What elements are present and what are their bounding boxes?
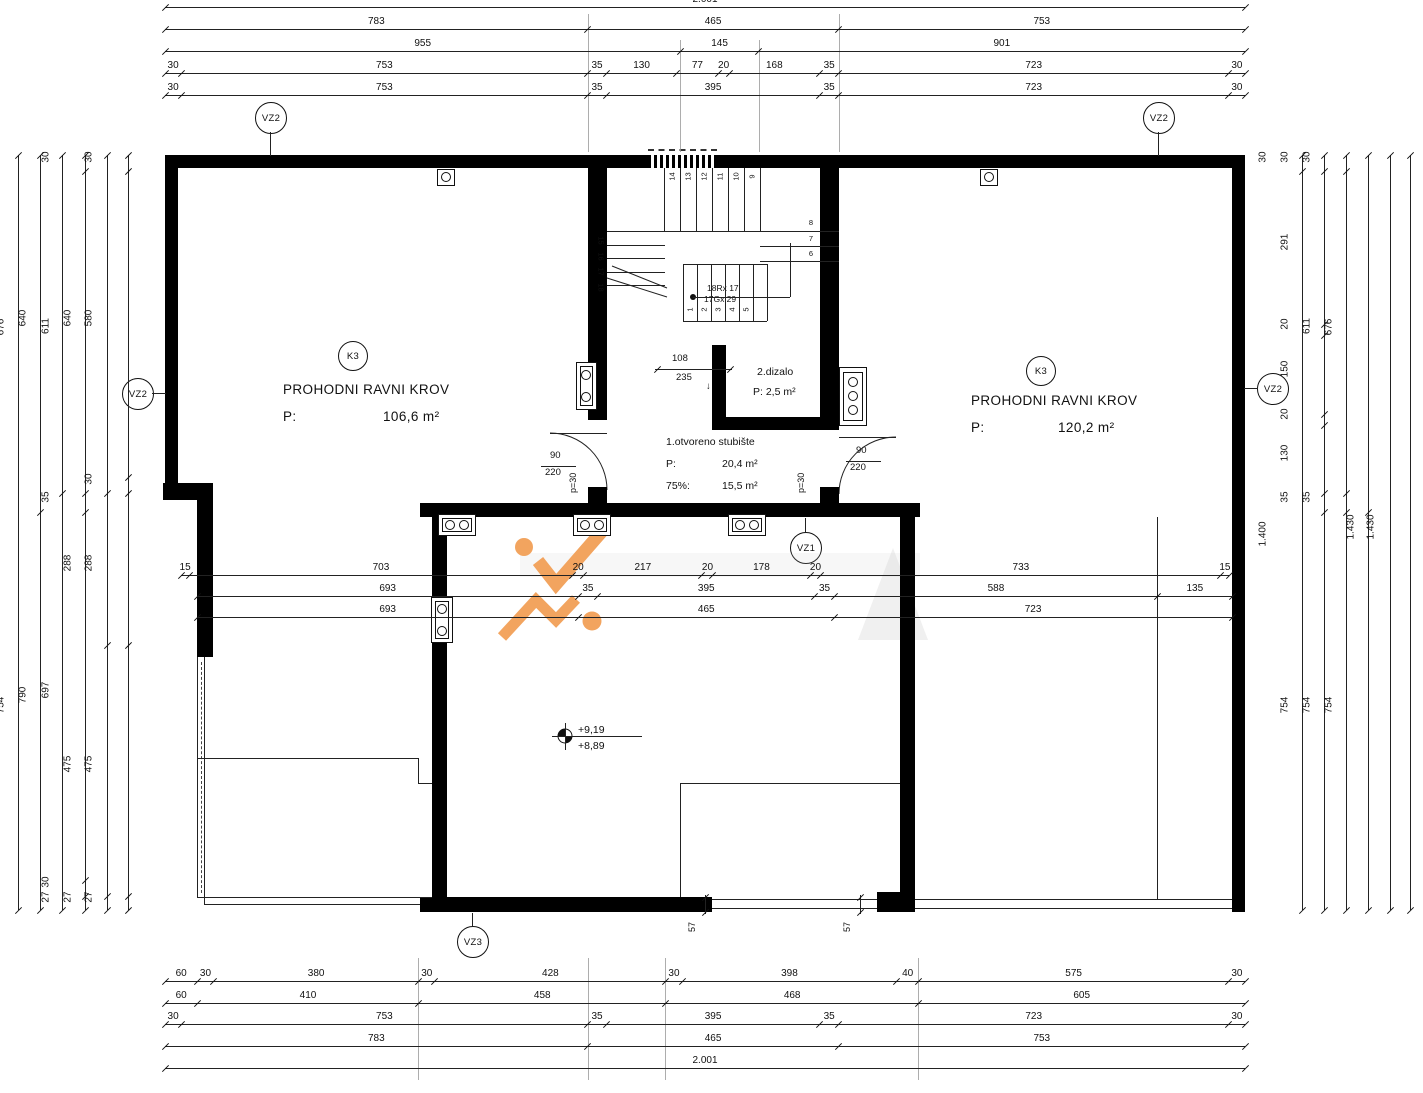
dim-chain-middle-1-value-0: 15 bbox=[155, 562, 215, 573]
floor-plan-sheet: K3 PROHODNI RAVNI KROV P: 106,6 m² K3 PR… bbox=[0, 0, 1423, 1093]
drain-circle-13 bbox=[441, 172, 451, 182]
plan-line-28 bbox=[607, 285, 665, 286]
dim-chain-left-5-value-2: 475 bbox=[63, 734, 74, 794]
dim-chain-left-3-value-1: 790 bbox=[18, 665, 29, 725]
dim-chain-middle-1-value-7: 733 bbox=[991, 562, 1051, 573]
dim-chain-top-2 bbox=[165, 29, 1245, 30]
dim-chain-top-1 bbox=[165, 7, 1245, 8]
dim-chain-bottom-2-value-3: 468 bbox=[762, 990, 822, 1001]
drain-circle-9 bbox=[581, 392, 591, 402]
dim-chain-top-5-value-0: 30 bbox=[143, 82, 203, 93]
dim-chain-middle-1-value-1: 703 bbox=[351, 562, 411, 573]
plan-line-33 bbox=[697, 264, 698, 321]
dim-chain-left-6-value-5: 27 bbox=[84, 867, 95, 927]
dim-chain-left-2-value-1: 754 bbox=[0, 675, 7, 735]
dim-chain-right-3-value-0: 30 bbox=[1302, 127, 1313, 187]
dim-chain-middle-1 bbox=[181, 575, 1229, 576]
plan-line-39 bbox=[790, 243, 791, 297]
plan-line-26 bbox=[607, 258, 665, 259]
dim-chain-middle-1-value-8: 15 bbox=[1195, 562, 1255, 573]
plan-line-19 bbox=[712, 168, 713, 231]
plan-line-42 bbox=[680, 40, 681, 152]
dim-chain-top-5-value-1: 753 bbox=[354, 82, 414, 93]
plan-line-15 bbox=[607, 231, 839, 232]
section-break-dashed bbox=[648, 149, 717, 151]
dim-chain-right-1-value-1: 1.400 bbox=[1258, 504, 1269, 564]
dim-chain-bottom-5-value-0: 2.001 bbox=[675, 1055, 735, 1066]
dim-chain-top-2-value-1: 465 bbox=[683, 16, 743, 27]
dim-chain-bottom-2-value-4: 605 bbox=[1052, 990, 1112, 1001]
plan-line-1 bbox=[204, 904, 420, 905]
level-marker-quadrant-se bbox=[565, 736, 572, 743]
dim-chain-left-6-value-0: 30 bbox=[84, 127, 95, 187]
stair-step-number-top-10: 10 bbox=[732, 170, 741, 184]
dim-chain-top-4-value-9: 30 bbox=[1207, 60, 1267, 71]
dim-chain-bottom-1-value-4: 428 bbox=[520, 968, 580, 979]
section-break-hatch bbox=[648, 155, 717, 168]
plan-line-37 bbox=[753, 264, 754, 321]
dim-chain-middle-1-value-4: 20 bbox=[677, 562, 737, 573]
dim-chain-bottom-1-value-1: 30 bbox=[175, 968, 235, 979]
dim-chain-middle-3 bbox=[197, 617, 1232, 618]
plan-line-25 bbox=[607, 245, 665, 246]
wall-15 bbox=[420, 897, 712, 912]
dim-chain-top-2-value-2: 753 bbox=[1012, 16, 1072, 27]
dim-chain-left-4-value-2: 35 bbox=[41, 467, 52, 527]
dim-chain-bottom-3-value-2: 35 bbox=[567, 1011, 627, 1022]
dim-chain-top-3-value-0: 955 bbox=[393, 38, 453, 49]
plan-line-22 bbox=[760, 168, 761, 231]
dim-chain-middle-1-value-5: 178 bbox=[731, 562, 791, 573]
dim-chain-left-6 bbox=[128, 155, 129, 910]
dim-chain-top-4 bbox=[165, 73, 1245, 74]
plan-line-54 bbox=[472, 913, 473, 926]
plan-line-16 bbox=[664, 168, 665, 231]
dim-chain-middle-2-value-5: 135 bbox=[1165, 583, 1225, 594]
drain-circle-5 bbox=[749, 520, 759, 530]
plan-line-13 bbox=[915, 908, 1232, 909]
dim-chain-right-6-value-0: 1.430 bbox=[1366, 497, 1377, 557]
dim-chain-bottom-1-value-6: 398 bbox=[759, 968, 819, 979]
plan-line-30 bbox=[683, 321, 767, 322]
dim-chain-left-1 bbox=[18, 155, 19, 910]
drain-circle-3 bbox=[594, 520, 604, 530]
plan-line-51 bbox=[152, 393, 166, 394]
dim-chain-top-4-value-3: 130 bbox=[612, 60, 672, 71]
plan-line-21 bbox=[744, 168, 745, 231]
wall-8 bbox=[820, 168, 839, 430]
plan-line-12 bbox=[915, 899, 1232, 900]
dim-chain-left-2 bbox=[40, 155, 41, 910]
dim-chain-right-2-value-7: 754 bbox=[1280, 675, 1291, 735]
dim-chain-top-3 bbox=[165, 51, 1245, 52]
plan-line-23 bbox=[760, 246, 839, 247]
dim-chain-bottom-3-value-5: 723 bbox=[1004, 1011, 1064, 1022]
plan-line-32 bbox=[767, 264, 768, 321]
dim-chain-bottom-3-value-4: 35 bbox=[799, 1011, 859, 1022]
dim-chain-middle-1-value-6: 20 bbox=[785, 562, 845, 573]
stair-step-number-right-8: 8 bbox=[804, 218, 818, 227]
stair-step-number-left-18: 18 bbox=[597, 280, 606, 294]
drain-circle-4 bbox=[735, 520, 745, 530]
plan-line-40 bbox=[655, 369, 732, 370]
door-left-arc bbox=[550, 433, 607, 490]
dim-chain-bottom-1-value-3: 30 bbox=[397, 968, 457, 979]
plan-line-34 bbox=[711, 264, 712, 321]
dim-chain-left-6-value-2: 30 bbox=[84, 449, 95, 509]
dim-chain-middle-2-value-3: 35 bbox=[795, 583, 855, 594]
dim-chain-middle-3-value-0: 693 bbox=[358, 604, 418, 615]
dim-chain-middle-2-value-1: 35 bbox=[558, 583, 618, 594]
wall-4 bbox=[197, 500, 213, 657]
stair-step-number-bottom-3: 3 bbox=[714, 303, 723, 317]
dim-chain-bottom-1 bbox=[165, 981, 1245, 982]
drain-circle-6 bbox=[437, 604, 447, 614]
plan-line-38 bbox=[693, 297, 790, 298]
plan-line-17 bbox=[680, 168, 681, 231]
dim-chain-top-4-value-8: 723 bbox=[1004, 60, 1064, 71]
dim-chain-right-2 bbox=[1324, 155, 1325, 910]
plan-line-7 bbox=[418, 783, 432, 784]
dim-chain-middle-2-value-0: 693 bbox=[358, 583, 418, 594]
stair-step-number-right-6: 6 bbox=[804, 249, 818, 258]
dim-chain-right-2-value-0: 30 bbox=[1280, 127, 1291, 187]
plan-line-5 bbox=[197, 758, 418, 759]
plan-line-6 bbox=[418, 758, 419, 783]
dim-chain-top-5-value-3: 395 bbox=[683, 82, 743, 93]
plan-line-3 bbox=[204, 657, 205, 904]
dim-chain-top-5-value-2: 35 bbox=[567, 82, 627, 93]
plan-line-24 bbox=[760, 261, 839, 262]
dim-chain-right-3-value-1: 611 bbox=[1302, 296, 1313, 356]
dim-chain-bottom-2 bbox=[165, 1003, 1245, 1004]
dim-chain-top-4-value-0: 30 bbox=[143, 60, 203, 71]
dim-chain-bottom-3-value-6: 30 bbox=[1207, 1011, 1267, 1022]
stair-step-number-bottom-1: 1 bbox=[686, 303, 695, 317]
dim-chain-top-5-value-5: 723 bbox=[1004, 82, 1064, 93]
stair-break-line-2 bbox=[607, 278, 667, 297]
dim-chain-top-5-value-6: 30 bbox=[1207, 82, 1267, 93]
plan-line-11 bbox=[712, 908, 877, 909]
stair-step-number-right-7: 7 bbox=[804, 234, 818, 243]
wall-3 bbox=[163, 483, 213, 500]
plan-line-43 bbox=[759, 40, 760, 152]
door-right-arc bbox=[839, 437, 896, 494]
dim-chain-right-5 bbox=[1390, 155, 1391, 910]
dim-chain-middle-2-value-4: 588 bbox=[966, 583, 1026, 594]
dim-chain-bottom-2-value-0: 60 bbox=[151, 990, 211, 1001]
dim-chain-middle-3-value-2: 723 bbox=[1003, 604, 1063, 615]
drain-circle-1 bbox=[459, 520, 469, 530]
plan-line-57 bbox=[541, 466, 576, 467]
dim-chain-bottom-2-value-2: 458 bbox=[512, 990, 572, 1001]
plan-line-56 bbox=[839, 437, 896, 438]
dim-chain-left-6-value-3: 288 bbox=[84, 533, 95, 593]
dim-chain-bottom-3-value-3: 395 bbox=[683, 1011, 743, 1022]
stair-step-number-bottom-5: 5 bbox=[742, 303, 751, 317]
dim-chain-right-3-value-3: 754 bbox=[1302, 675, 1313, 735]
dim-chain-left-5-value-1: 288 bbox=[63, 533, 74, 593]
dim-chain-middle-2-value-2: 395 bbox=[676, 583, 736, 594]
stair-step-number-bottom-4: 4 bbox=[728, 303, 737, 317]
dim-chain-top-5 bbox=[165, 95, 1245, 96]
dim-chain-top-1-value-0: 2.001 bbox=[675, 0, 735, 5]
plan-line-18 bbox=[696, 168, 697, 231]
dim-chain-left-4-value-1: 611 bbox=[41, 296, 52, 356]
wall-11 bbox=[712, 417, 839, 430]
dim-chain-right-3-value-2: 35 bbox=[1302, 467, 1313, 527]
dim-chain-middle-1-value-2: 20 bbox=[548, 562, 608, 573]
drain-circle-11 bbox=[848, 391, 858, 401]
plan-line-53 bbox=[805, 518, 806, 532]
plan-line-50 bbox=[1158, 132, 1159, 156]
dim-chain-bottom-4 bbox=[165, 1046, 1245, 1047]
level-marker-quadrant-nw bbox=[558, 729, 565, 736]
dim-chain-left-4-value-5: 27 bbox=[41, 867, 52, 927]
dim-chain-bottom-3-value-1: 753 bbox=[354, 1011, 414, 1022]
dim-chain-right-6 bbox=[1410, 155, 1411, 910]
plan-line-35 bbox=[725, 264, 726, 321]
plan-line-62 bbox=[565, 723, 566, 750]
drain-circle-12 bbox=[848, 405, 858, 415]
drain-circle-10 bbox=[848, 377, 858, 387]
plan-line-55 bbox=[550, 433, 607, 434]
stair-step-number-top-11: 11 bbox=[716, 170, 725, 184]
dim-chain-right-5-value-0: 1.430 bbox=[1346, 497, 1357, 557]
dim-chain-top-3-value-2: 901 bbox=[972, 38, 1032, 49]
wall-0 bbox=[165, 155, 648, 168]
dim-chain-right-1 bbox=[1302, 155, 1303, 910]
dim-chain-bottom-3 bbox=[165, 1024, 1245, 1025]
dim-chain-bottom-4-value-0: 783 bbox=[346, 1033, 406, 1044]
wall-16 bbox=[877, 892, 915, 912]
plan-line-2 bbox=[197, 657, 198, 897]
dim-chain-top-5-value-4: 35 bbox=[799, 82, 859, 93]
plan-line-9 bbox=[680, 783, 900, 784]
dim-chain-bottom-1-value-9: 30 bbox=[1207, 968, 1267, 979]
drain-circle-7 bbox=[437, 626, 447, 636]
dim-chain-top-4-value-7: 35 bbox=[799, 60, 859, 71]
stair-step-number-left-16: 16 bbox=[597, 249, 606, 263]
dim-chain-top-4-value-1: 753 bbox=[354, 60, 414, 71]
drain-circle-0 bbox=[445, 520, 455, 530]
plan-line-27 bbox=[607, 272, 665, 273]
dim-chain-bottom-1-value-5: 30 bbox=[644, 968, 704, 979]
dim-chain-bottom-4-value-2: 753 bbox=[1012, 1033, 1072, 1044]
dim-chain-middle-2 bbox=[197, 596, 1232, 597]
stair-step-number-top-14: 14 bbox=[668, 170, 677, 184]
stair-step-number-top-13: 13 bbox=[684, 170, 693, 184]
stair-step-number-left-15: 15 bbox=[597, 234, 606, 248]
dim-chain-top-2-value-0: 783 bbox=[346, 16, 406, 27]
wall-12 bbox=[420, 503, 920, 517]
dim-chain-left-6-value-4: 475 bbox=[84, 734, 95, 794]
stair-step-number-top-9: 9 bbox=[748, 170, 757, 184]
plan-line-4 bbox=[201, 662, 203, 893]
dim-chain-bottom-4-value-1: 465 bbox=[683, 1033, 743, 1044]
dim-chain-bottom-3-value-0: 30 bbox=[143, 1011, 203, 1022]
stair-step-number-bottom-2: 2 bbox=[700, 303, 709, 317]
plan-line-10 bbox=[712, 899, 877, 900]
dim-chain-left-4-value-0: 30 bbox=[41, 127, 52, 187]
plan-line-36 bbox=[739, 264, 740, 321]
dim-chain-top-3-value-1: 145 bbox=[690, 38, 750, 49]
plan-line-52 bbox=[1244, 388, 1258, 389]
dim-chain-left-6-value-1: 580 bbox=[84, 288, 95, 348]
wall-13 bbox=[432, 517, 447, 912]
plan-line-0 bbox=[197, 897, 432, 898]
dim-chain-right-4-value-0: 676 bbox=[1324, 297, 1335, 357]
dim-chain-left-5-value-3: 27 bbox=[63, 867, 74, 927]
plan-line-8 bbox=[680, 783, 681, 897]
dim-chain-middle-1-value-3: 217 bbox=[613, 562, 673, 573]
plan-line-20 bbox=[728, 168, 729, 231]
dim-chain-bottom-2-value-1: 410 bbox=[278, 990, 338, 1001]
plan-line-58 bbox=[846, 461, 881, 462]
plan-line-49 bbox=[270, 132, 271, 156]
dim-chain-right-1-value-0: 30 bbox=[1258, 127, 1269, 187]
dim-chain-bottom-1-value-7: 40 bbox=[878, 968, 938, 979]
wall-2 bbox=[165, 155, 178, 500]
dim-chain-right-2-value-1: 291 bbox=[1280, 212, 1291, 272]
dim-chain-top-4-value-6: 168 bbox=[744, 60, 804, 71]
dim-chain-left-4-value-3: 697 bbox=[41, 660, 52, 720]
drain-circle-8 bbox=[581, 370, 591, 380]
dim-chain-left-2-value-0: 676 bbox=[0, 297, 7, 357]
drain-circle-14 bbox=[984, 172, 994, 182]
dim-chain-left-3-value-0: 640 bbox=[18, 288, 29, 348]
dim-chain-left-5 bbox=[107, 155, 108, 910]
stair-step-number-top-12: 12 bbox=[700, 170, 709, 184]
dim-chain-bottom-1-value-2: 380 bbox=[286, 968, 346, 979]
dim-chain-bottom-5 bbox=[165, 1068, 1245, 1069]
plan-line-31 bbox=[683, 264, 684, 321]
dim-chain-left-5-value-0: 640 bbox=[63, 288, 74, 348]
dim-chain-right-4-value-1: 754 bbox=[1324, 675, 1335, 735]
stair-step-number-left-17: 17 bbox=[597, 265, 606, 279]
dim-chain-middle-3-value-1: 465 bbox=[676, 604, 736, 615]
dim-chain-bottom-1-value-8: 575 bbox=[1044, 968, 1104, 979]
drain-circle-2 bbox=[580, 520, 590, 530]
wall-5 bbox=[1232, 155, 1245, 912]
dim-chain-right-2-value-6: 35 bbox=[1280, 467, 1291, 527]
wall-1 bbox=[717, 155, 1245, 168]
wall-14 bbox=[900, 517, 915, 912]
